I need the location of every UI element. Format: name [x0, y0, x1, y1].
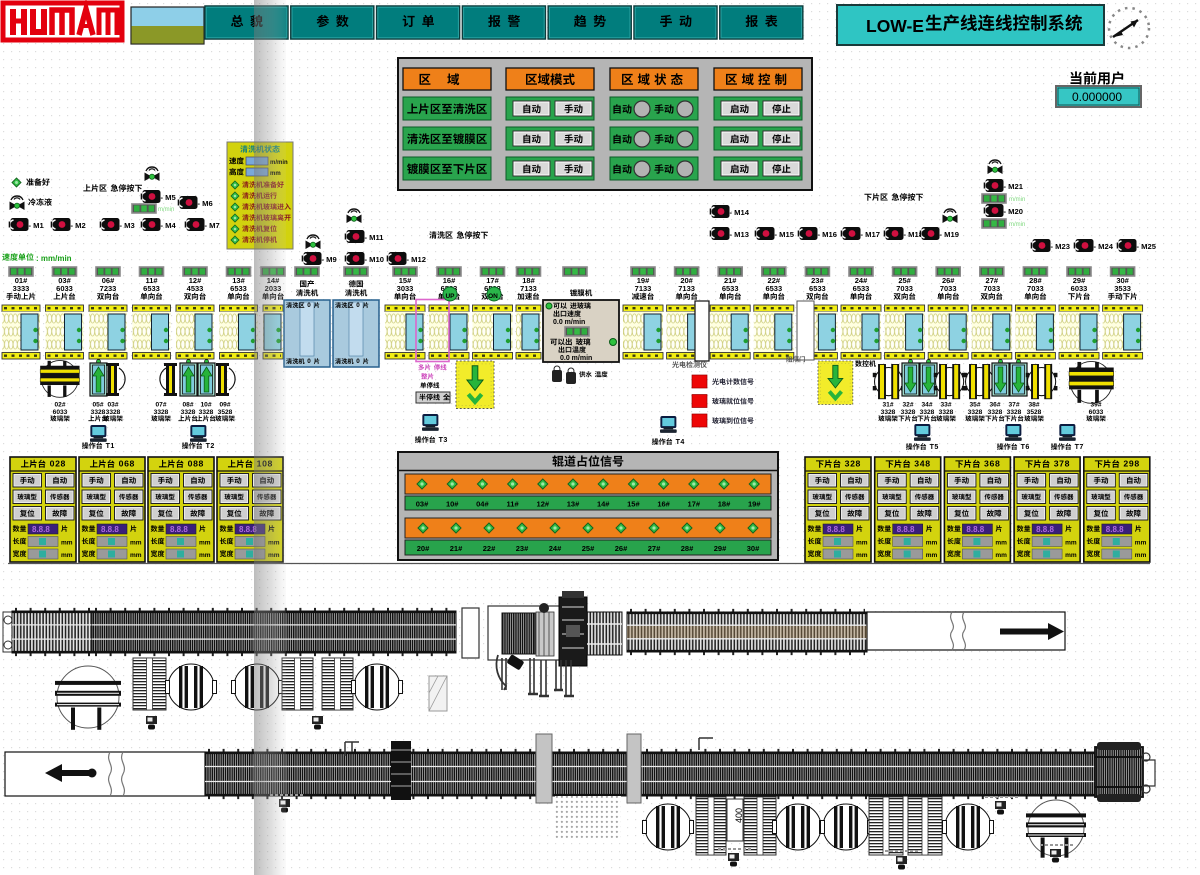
svg-text:15#: 15# — [627, 500, 640, 509]
svg-text:0: 0 — [307, 302, 311, 309]
svg-text:m/min: m/min — [158, 207, 174, 213]
svg-text:14#: 14# — [597, 500, 610, 509]
svg-text:3328: 3328 — [988, 409, 1003, 416]
svg-text:12#: 12# — [537, 500, 550, 509]
svg-text:34#: 34# — [921, 402, 932, 409]
svg-text:- M6: - M6 — [198, 199, 213, 208]
svg-text:3328: 3328 — [106, 409, 121, 416]
svg-text:29#: 29# — [714, 544, 727, 553]
svg-text:088: 088 — [188, 459, 204, 469]
svg-text:8.8.8: 8.8.8 — [827, 525, 845, 534]
svg-text:328: 328 — [845, 459, 861, 469]
svg-text:30#: 30# — [747, 544, 760, 553]
svg-text:7033: 7033 — [983, 284, 1000, 293]
svg-text:8.8.8: 8.8.8 — [32, 525, 50, 534]
svg-text:mm: mm — [130, 540, 142, 547]
svg-text:8.8.8: 8.8.8 — [966, 525, 984, 534]
svg-text:- M14: - M14 — [730, 208, 750, 217]
svg-text:3328: 3328 — [968, 409, 983, 416]
svg-text:mm: mm — [995, 540, 1007, 547]
svg-text:35#: 35# — [969, 402, 980, 409]
svg-text:3333: 3333 — [13, 284, 30, 293]
svg-text:068: 068 — [119, 459, 135, 469]
svg-text:7133: 7133 — [520, 284, 537, 293]
svg-text:mm: mm — [926, 552, 938, 559]
svg-text:03#: 03# — [107, 402, 118, 409]
svg-text:0.0 m/min: 0.0 m/min — [560, 355, 592, 362]
svg-text:6033: 6033 — [1071, 284, 1088, 293]
svg-text:26#: 26# — [615, 544, 628, 553]
svg-text:36#: 36# — [989, 402, 1000, 409]
svg-text:3528: 3528 — [1027, 409, 1042, 416]
svg-text:25#: 25# — [582, 544, 595, 553]
svg-text:02#: 02# — [54, 402, 65, 409]
svg-text:19#: 19# — [748, 500, 761, 509]
svg-text:3328: 3328 — [91, 409, 106, 416]
svg-text:13#: 13# — [567, 500, 580, 509]
svg-text:- M25: - M25 — [1137, 242, 1157, 251]
svg-text:6033: 6033 — [56, 284, 73, 293]
svg-text:6533: 6533 — [143, 284, 160, 293]
svg-text:- M16: - M16 — [818, 230, 837, 239]
svg-text:- M24: - M24 — [1094, 242, 1114, 251]
svg-text:UP: UP — [445, 293, 455, 300]
svg-text:mm: mm — [995, 552, 1007, 559]
svg-text:6533: 6533 — [722, 284, 739, 293]
svg-text:10#: 10# — [446, 500, 459, 509]
svg-text:3328: 3328 — [1007, 409, 1022, 416]
svg-text:- M1: - M1 — [29, 221, 45, 230]
svg-text:- M7: - M7 — [205, 221, 220, 230]
svg-text:7133: 7133 — [635, 284, 652, 293]
svg-text:3328: 3328 — [199, 409, 214, 416]
svg-text:27#: 27# — [648, 544, 661, 553]
svg-text:6533: 6533 — [809, 284, 826, 293]
svg-text:3328: 3328 — [901, 409, 916, 416]
svg-text:7133: 7133 — [678, 284, 695, 293]
svg-text:3533: 3533 — [1114, 284, 1131, 293]
svg-text:mm: mm — [856, 552, 868, 559]
svg-text:- M10: - M10 — [365, 255, 384, 264]
svg-text:mm: mm — [130, 552, 142, 559]
svg-text:39#: 39# — [1090, 402, 1101, 409]
svg-text:- M20: - M20 — [1004, 207, 1023, 216]
svg-text:T3: T3 — [439, 436, 448, 444]
svg-text:- M2: - M2 — [71, 221, 86, 230]
svg-text:7033: 7033 — [1027, 284, 1044, 293]
svg-text:3528: 3528 — [218, 409, 233, 416]
svg-text:6033: 6033 — [53, 409, 68, 416]
svg-text:T7: T7 — [1075, 443, 1084, 451]
svg-text:- M5: - M5 — [161, 193, 177, 202]
svg-text:- M15: - M15 — [775, 230, 795, 239]
svg-text:m/min: m/min — [1009, 222, 1025, 228]
svg-text:- M4: - M4 — [161, 221, 177, 230]
svg-text:6533: 6533 — [853, 284, 870, 293]
svg-text:8.8.8: 8.8.8 — [897, 525, 915, 534]
svg-text:378: 378 — [1054, 459, 1070, 469]
svg-text:- M11: - M11 — [365, 233, 385, 242]
svg-text:8.8.8: 8.8.8 — [101, 525, 119, 534]
svg-text:mm: mm — [61, 552, 73, 559]
svg-text:mm: mm — [856, 540, 868, 547]
svg-text:6033: 6033 — [1089, 409, 1104, 416]
svg-text:33#: 33# — [940, 402, 951, 409]
svg-text:T4: T4 — [676, 438, 685, 446]
svg-text:mm: mm — [199, 540, 211, 547]
svg-text:3328: 3328 — [154, 409, 169, 416]
svg-text:028: 028 — [50, 459, 66, 469]
svg-text:08#: 08# — [182, 402, 193, 409]
svg-text:11#: 11# — [507, 500, 520, 509]
svg-text:- M9: - M9 — [322, 255, 337, 264]
svg-text:16#: 16# — [657, 500, 670, 509]
svg-text:- M13: - M13 — [730, 230, 749, 239]
svg-text:mm: mm — [199, 552, 211, 559]
svg-text:3328: 3328 — [920, 409, 935, 416]
svg-text:21#: 21# — [450, 544, 463, 553]
svg-text:m/min: m/min — [1009, 197, 1025, 203]
svg-text:368: 368 — [984, 459, 1000, 469]
svg-text:mm: mm — [1065, 552, 1077, 559]
svg-text:20#: 20# — [417, 544, 430, 553]
svg-text:24#: 24# — [549, 544, 562, 553]
svg-text:LOW-E: LOW-E — [866, 16, 924, 36]
svg-text:23#: 23# — [516, 544, 529, 553]
svg-text:8.8.8: 8.8.8 — [170, 525, 188, 534]
svg-text:T6: T6 — [1021, 443, 1030, 451]
svg-text:- M21: - M21 — [1004, 182, 1024, 191]
svg-text:- M12: - M12 — [407, 255, 426, 264]
svg-text:4533: 4533 — [187, 284, 204, 293]
svg-text:ON: ON — [488, 293, 498, 300]
svg-text:22#: 22# — [483, 544, 496, 553]
svg-text:7033: 7033 — [940, 284, 957, 293]
svg-text:0: 0 — [307, 358, 311, 365]
svg-text:400: 400 — [734, 808, 744, 823]
svg-text:: mm/min: : mm/min — [36, 254, 72, 263]
svg-text:7033: 7033 — [896, 284, 913, 293]
svg-text:7233: 7233 — [100, 284, 117, 293]
svg-text:04#: 04# — [476, 500, 489, 509]
svg-text:17#: 17# — [688, 500, 701, 509]
svg-text:37#: 37# — [1008, 402, 1019, 409]
svg-text:05#: 05# — [92, 402, 103, 409]
svg-text:28#: 28# — [681, 544, 694, 553]
svg-text:18#: 18# — [718, 500, 731, 509]
svg-text:- M3: - M3 — [120, 221, 135, 230]
svg-text:3328: 3328 — [881, 409, 896, 416]
svg-text:mm: mm — [1135, 540, 1147, 547]
svg-text:6533: 6533 — [230, 284, 247, 293]
svg-text:298: 298 — [1123, 459, 1139, 469]
svg-text:- M23: - M23 — [1051, 242, 1070, 251]
svg-text:- M17: - M17 — [861, 230, 880, 239]
svg-text:mm: mm — [61, 540, 73, 547]
svg-text:38#: 38# — [1028, 402, 1039, 409]
svg-text:3328: 3328 — [939, 409, 954, 416]
svg-text:32#: 32# — [902, 402, 913, 409]
svg-text:- M19: - M19 — [940, 230, 959, 239]
svg-text:0: 0 — [356, 358, 360, 365]
svg-text:348: 348 — [914, 459, 930, 469]
svg-text:T2: T2 — [206, 442, 215, 450]
svg-text:0.000000: 0.000000 — [1072, 90, 1122, 104]
svg-text:0.0 m/min: 0.0 m/min — [553, 319, 585, 326]
svg-text:8.8.8: 8.8.8 — [1106, 525, 1124, 534]
svg-text:0: 0 — [356, 302, 360, 309]
svg-text:07#: 07# — [155, 402, 166, 409]
svg-text:03#: 03# — [416, 500, 429, 509]
svg-text:8.8.8: 8.8.8 — [1036, 525, 1054, 534]
svg-text:T1: T1 — [106, 442, 115, 450]
svg-text:T5: T5 — [930, 443, 939, 451]
svg-text:10#: 10# — [200, 402, 211, 409]
svg-text:mm: mm — [926, 540, 938, 547]
svg-text:mm: mm — [1135, 552, 1147, 559]
svg-text:3328: 3328 — [181, 409, 196, 416]
svg-text:6533: 6533 — [765, 284, 782, 293]
svg-text:09#: 09# — [219, 402, 230, 409]
svg-text:3033: 3033 — [397, 284, 414, 293]
svg-text:31#: 31# — [882, 402, 893, 409]
svg-text:mm: mm — [1065, 540, 1077, 547]
